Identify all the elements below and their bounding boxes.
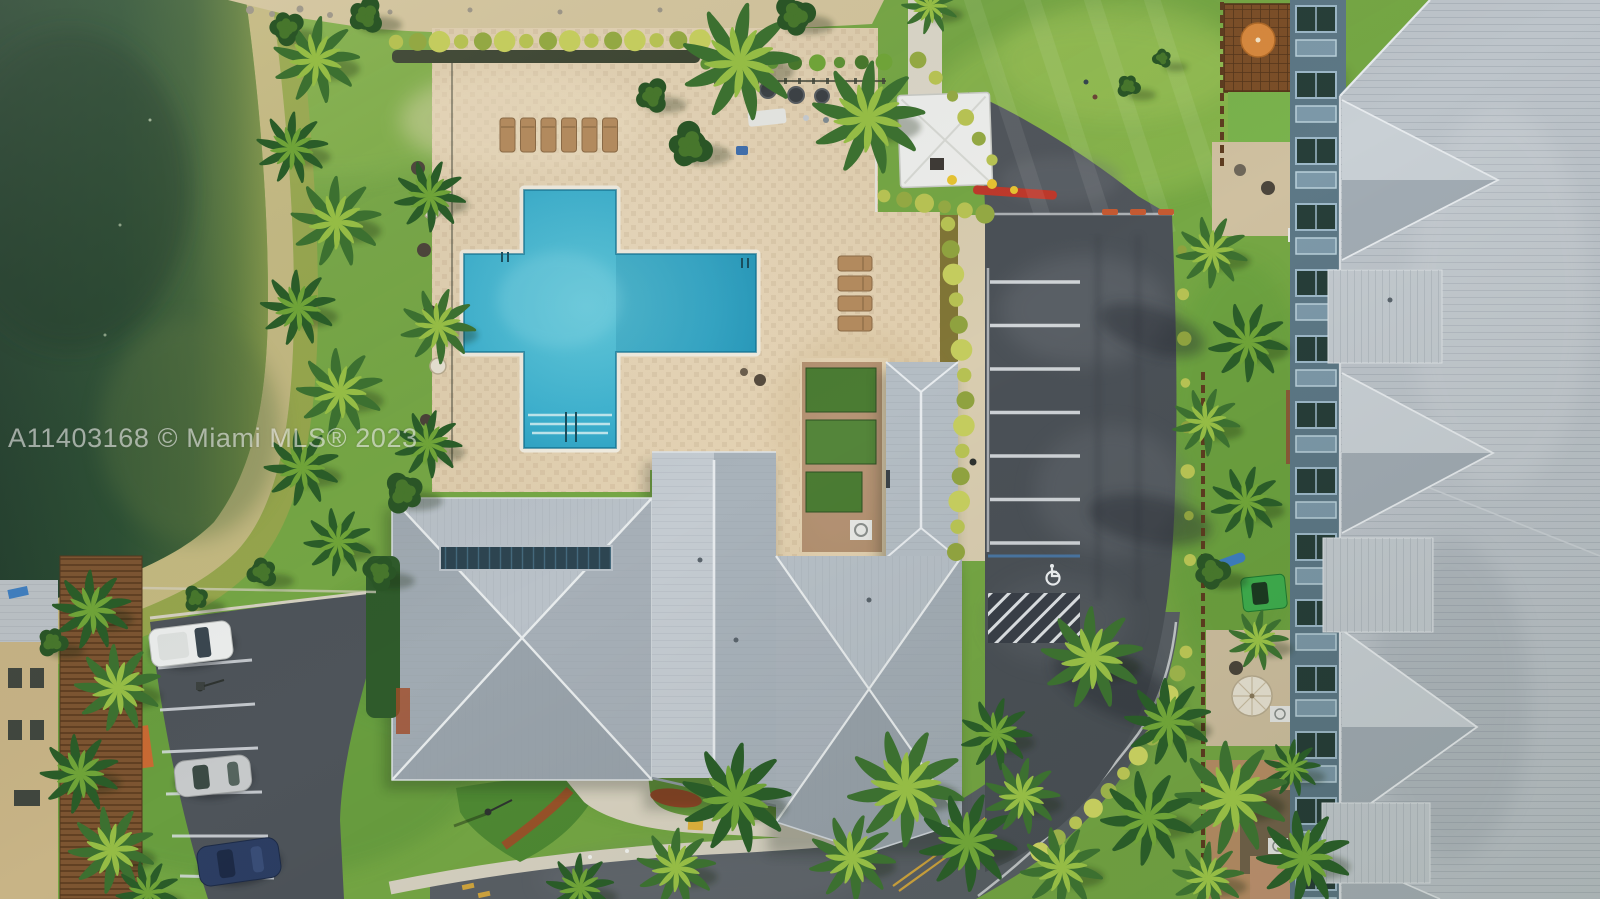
shrub xyxy=(454,34,468,48)
mls-watermark: A11403168 © Miami MLS® 2023 xyxy=(8,423,418,454)
lounge-chair xyxy=(541,118,556,152)
shrub xyxy=(1084,799,1103,818)
shrub xyxy=(910,52,927,69)
shrub xyxy=(938,200,951,213)
shrub xyxy=(1129,746,1148,765)
shrub xyxy=(955,444,969,458)
shrub xyxy=(950,520,964,534)
shrub xyxy=(809,54,826,71)
shrub xyxy=(1117,767,1130,780)
shrub xyxy=(624,30,646,52)
shrub xyxy=(584,34,598,48)
shrub xyxy=(1181,378,1191,388)
aerial-photo: A11403168 © Miami MLS® 2023 xyxy=(0,0,1600,899)
shrub xyxy=(948,491,970,513)
lounge-chair xyxy=(603,118,618,152)
lounge-chair xyxy=(582,118,597,152)
shrub xyxy=(389,35,403,49)
shrub xyxy=(519,34,533,48)
shrub xyxy=(943,264,965,286)
shrub xyxy=(941,217,955,231)
shrub xyxy=(975,204,994,223)
shrub xyxy=(949,292,963,306)
shrub xyxy=(494,31,516,53)
shrub xyxy=(1180,646,1193,659)
shrub xyxy=(929,71,943,85)
shrub xyxy=(1184,554,1196,566)
shrub xyxy=(896,192,912,208)
shrub xyxy=(957,368,971,382)
shrub xyxy=(947,91,958,102)
shrub xyxy=(855,55,869,69)
lounge-chair xyxy=(521,118,536,152)
lounge-chair xyxy=(500,118,515,152)
lounge-chair xyxy=(838,256,872,271)
shrub xyxy=(429,31,451,53)
shrub xyxy=(604,32,622,50)
shrub xyxy=(915,194,934,213)
shrub xyxy=(559,30,581,52)
shrub xyxy=(1170,665,1186,681)
shrub xyxy=(950,316,968,334)
shrub xyxy=(986,154,997,165)
shrub xyxy=(539,32,557,50)
lounge-chair xyxy=(562,118,577,152)
shrub xyxy=(951,339,973,361)
shrub xyxy=(474,32,492,50)
shrub xyxy=(1177,331,1191,345)
shrub xyxy=(1184,511,1194,521)
shrub xyxy=(1177,288,1189,300)
shrub xyxy=(957,109,974,126)
shrub xyxy=(1069,816,1082,829)
shrub xyxy=(957,202,973,218)
shrub xyxy=(649,33,663,47)
shrub xyxy=(876,54,893,71)
lounge-chair xyxy=(838,316,872,331)
shrub xyxy=(834,57,845,68)
shrub xyxy=(1181,464,1195,478)
lounge-chair xyxy=(838,296,872,311)
shrub xyxy=(409,33,427,51)
shrub xyxy=(952,467,970,485)
shrub xyxy=(972,132,986,146)
shrub xyxy=(878,190,891,203)
lounge-chair xyxy=(838,276,872,291)
shrub xyxy=(942,240,960,258)
shrub xyxy=(953,415,975,437)
shrub xyxy=(957,391,975,409)
shrub xyxy=(947,543,965,561)
